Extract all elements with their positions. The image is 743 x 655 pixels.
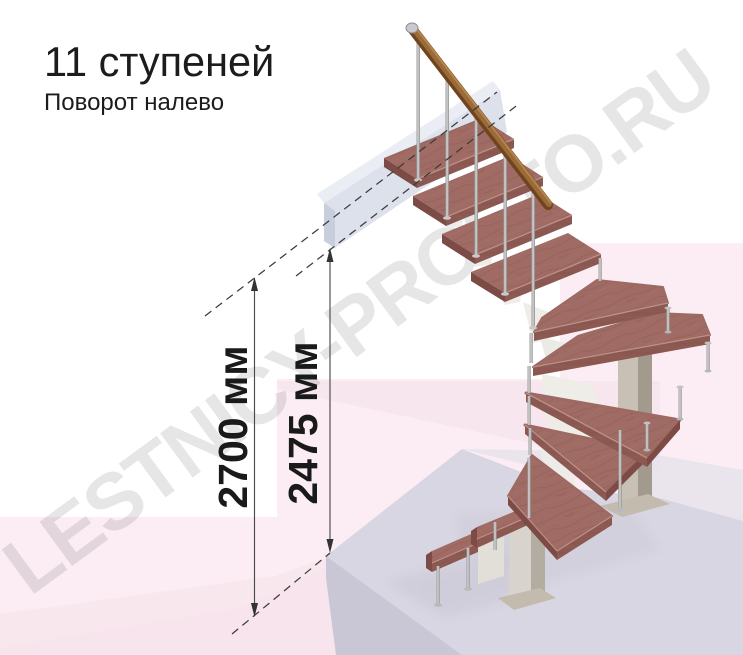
svg-text:Поворот налево: Поворот налево <box>44 89 224 116</box>
svg-text:2700 мм: 2700 мм <box>210 345 256 508</box>
svg-text:11 ступеней: 11 ступеней <box>44 38 274 85</box>
svg-text:2475 мм: 2475 мм <box>280 341 326 504</box>
